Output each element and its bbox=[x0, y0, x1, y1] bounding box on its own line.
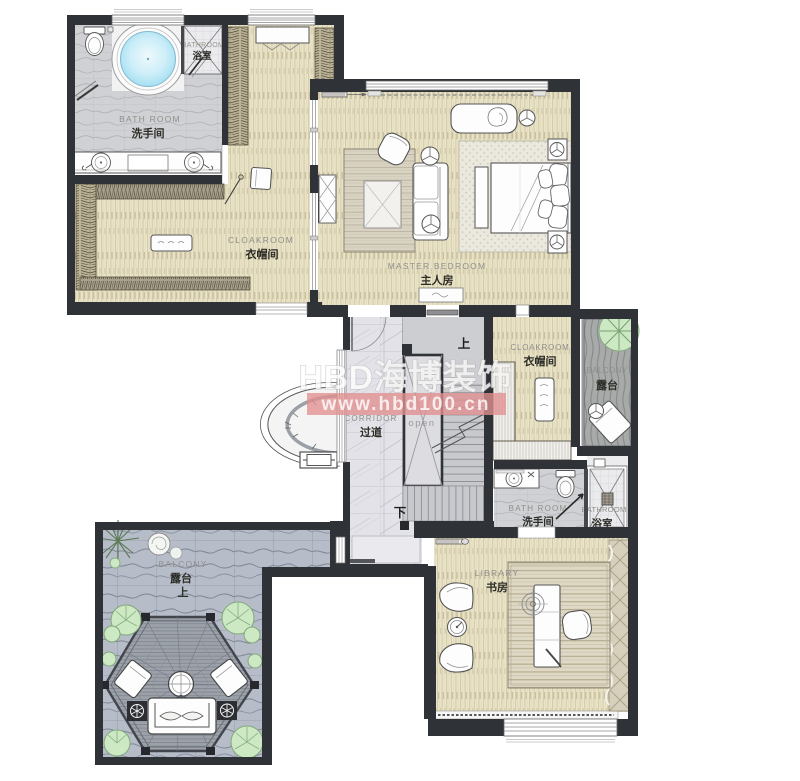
svg-text:露台: 露台 bbox=[596, 378, 618, 392]
svg-text:上: 上 bbox=[458, 336, 471, 351]
svg-text:BATHROOM: BATHROOM bbox=[182, 42, 224, 49]
svg-text:BATHROOM: BATHROOM bbox=[581, 505, 626, 514]
svg-text:BALCONY: BALCONY bbox=[586, 366, 627, 375]
svg-text:衣帽间: 衣帽间 bbox=[524, 354, 557, 368]
svg-text:CLOAKROOM: CLOAKROOM bbox=[228, 235, 294, 245]
svg-text:HBD海博装饰: HBD海博装饰 bbox=[298, 359, 511, 397]
svg-text:浴室: 浴室 bbox=[192, 50, 212, 62]
svg-text:下: 下 bbox=[394, 506, 407, 520]
svg-text:洗手间: 洗手间 bbox=[522, 515, 554, 528]
svg-text:CORRIDOR: CORRIDOR bbox=[344, 414, 397, 423]
svg-text:衣帽间: 衣帽间 bbox=[246, 247, 279, 261]
svg-text:www.hbd100.cn: www.hbd100.cn bbox=[321, 394, 491, 415]
svg-text:open: open bbox=[408, 418, 435, 429]
svg-text:MASTER BEDROOM: MASTER BEDROOM bbox=[388, 261, 487, 271]
svg-text:BATH ROOM: BATH ROOM bbox=[119, 114, 181, 124]
svg-text:BALCONY: BALCONY bbox=[158, 559, 207, 569]
svg-text:BATH ROOM: BATH ROOM bbox=[509, 504, 568, 513]
svg-text:露台: 露台 bbox=[170, 571, 192, 585]
svg-text:过道: 过道 bbox=[360, 425, 382, 439]
svg-text:主人房: 主人房 bbox=[421, 273, 454, 287]
svg-text:上: 上 bbox=[178, 585, 189, 599]
svg-text:CLOAKROOM: CLOAKROOM bbox=[510, 343, 569, 352]
svg-text:LIBRARY: LIBRARY bbox=[475, 568, 520, 578]
svg-text:书房: 书房 bbox=[486, 580, 508, 594]
svg-text:洗手间: 洗手间 bbox=[132, 126, 165, 140]
